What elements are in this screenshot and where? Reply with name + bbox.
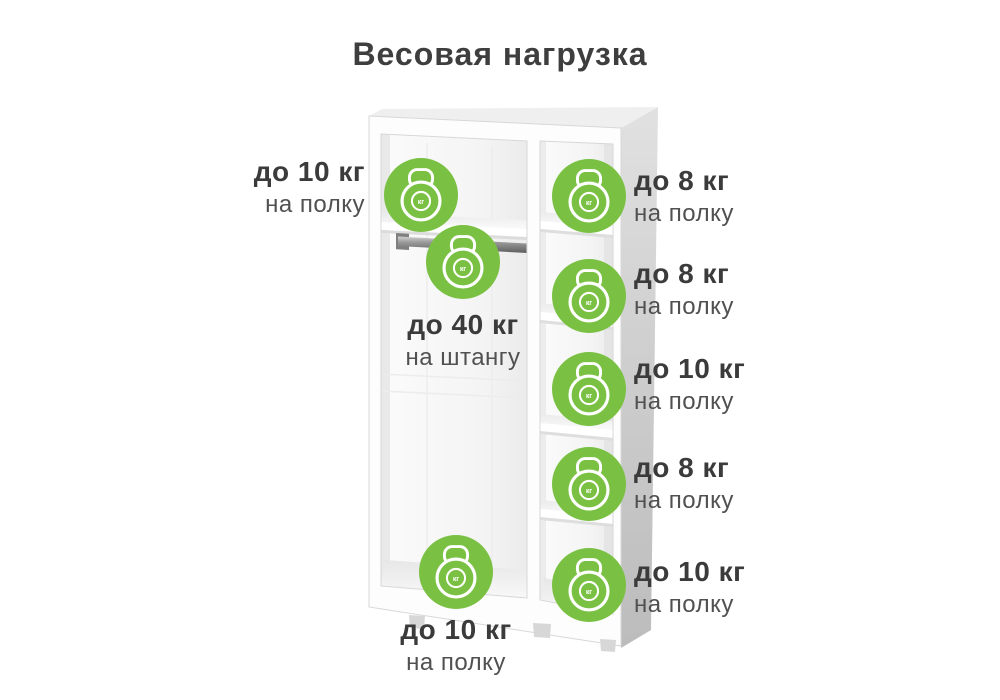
label-rod-limit: до 40 кг: [405, 309, 520, 341]
label-right-shelf-2-target: на полку: [634, 293, 734, 321]
wardrobe-foot: [600, 639, 616, 652]
weight-badge-bottom-shelf: [419, 535, 493, 609]
weight-load-infographic: Весовая нагрузка: [0, 0, 1000, 700]
weight-badge-right-shelf-5: [552, 548, 626, 622]
label-right-shelf-1-limit: до 8 кг: [634, 165, 734, 197]
label-right-shelf-4-target: на полку: [634, 487, 734, 515]
label-right-shelf-1-target: на полку: [634, 200, 734, 228]
weight-badge-right-shelf-2: [552, 259, 626, 333]
label-rod-target: на штангу: [405, 344, 520, 372]
label-right-shelf-1: до 8 кг на полку: [634, 165, 734, 228]
label-right-shelf-2-limit: до 8 кг: [634, 258, 734, 290]
label-right-shelf-4: до 8 кг на полку: [634, 452, 734, 515]
label-left-shelf-limit: до 10 кг: [254, 156, 365, 188]
label-bottom-shelf-limit: до 10 кг: [400, 614, 511, 646]
weight-badge-right-shelf-1: [552, 159, 626, 233]
label-right-shelf-4-limit: до 8 кг: [634, 452, 734, 484]
label-right-shelf-3-limit: до 10 кг: [634, 353, 745, 385]
label-right-shelf-2: до 8 кг на полку: [634, 258, 734, 321]
label-right-shelf-3: до 10 кг на полку: [634, 353, 745, 416]
label-rod: до 40 кг на штангу: [405, 309, 520, 372]
label-right-shelf-5-target: на полку: [634, 591, 745, 619]
weight-badge-rod: [426, 225, 500, 299]
weight-badge-left-shelf: [384, 158, 458, 232]
label-bottom-shelf: до 10 кг на полку: [400, 614, 511, 677]
label-left-shelf-target: на полку: [254, 191, 365, 219]
label-right-shelf-5-limit: до 10 кг: [634, 556, 745, 588]
weight-badge-right-shelf-4: [552, 447, 626, 521]
label-bottom-shelf-target: на полку: [400, 649, 511, 677]
wardrobe-foot: [533, 623, 551, 638]
label-left-shelf: до 10 кг на полку: [254, 156, 365, 219]
weight-badge-right-shelf-3: [552, 352, 626, 426]
label-right-shelf-5: до 10 кг на полку: [634, 556, 745, 619]
label-right-shelf-3-target: на полку: [634, 388, 745, 416]
